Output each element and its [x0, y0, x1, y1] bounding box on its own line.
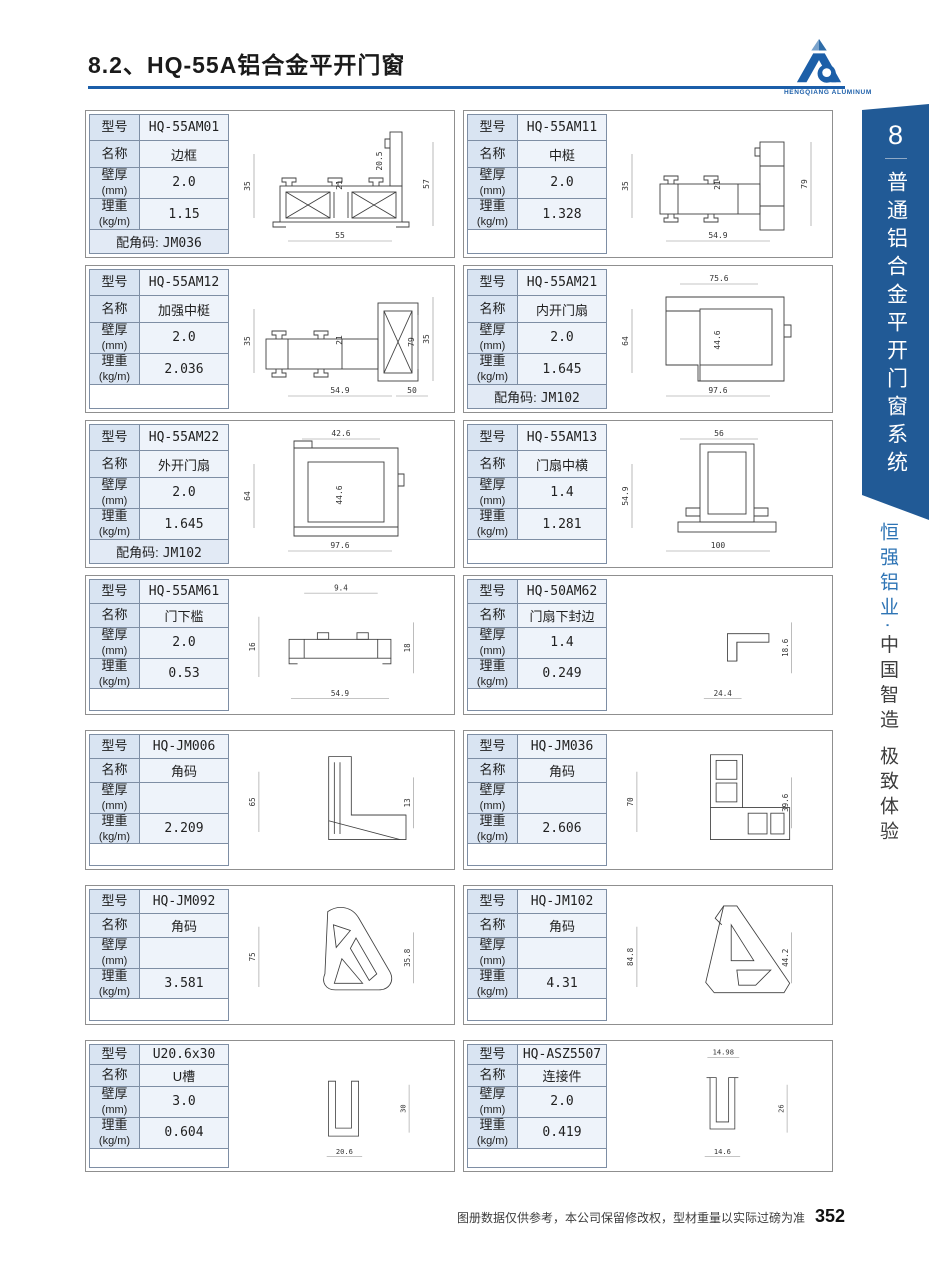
svg-text:57: 57	[422, 179, 431, 189]
name-label: 名称	[468, 1065, 518, 1087]
thickness-label: 壁厚(mm)	[90, 322, 140, 353]
weight-label: 理重(kg/m)	[90, 509, 140, 540]
spec-table: 型号 HQ-55AM21 名称 内开门扇 壁厚(mm) 2.0 理重(kg/m)…	[467, 269, 607, 409]
svg-text:75: 75	[248, 952, 257, 961]
svg-text:18.6: 18.6	[781, 638, 790, 657]
hengqiang-logo-icon	[788, 38, 850, 88]
svg-text:44.6: 44.6	[713, 330, 722, 349]
profile-drawing: 42.66444.697.6	[229, 424, 451, 564]
svg-text:21: 21	[335, 180, 344, 190]
svg-text:44.6: 44.6	[335, 485, 344, 504]
profile-drawing: 3020.6	[229, 1044, 451, 1168]
model-label: 型号	[90, 890, 140, 914]
thickness-label: 壁厚(mm)	[468, 937, 518, 968]
svg-text:35: 35	[243, 181, 252, 191]
thickness-value: 3.0	[140, 1087, 229, 1118]
spec-table: 型号 HQ-55AM12 名称 加强中梃 壁厚(mm) 2.0 理重(kg/m)…	[89, 269, 229, 409]
thickness-label: 壁厚(mm)	[90, 627, 140, 658]
weight-label: 理重(kg/m)	[468, 658, 518, 689]
weight-label: 理重(kg/m)	[468, 813, 518, 844]
thickness-value: 2.0	[518, 1087, 607, 1118]
svg-text:35: 35	[422, 334, 431, 344]
profile-drawing-svg: 42.66444.697.6	[229, 424, 451, 564]
name-value: 角码	[518, 758, 607, 782]
profile-card: 型号 HQ-55AM12 名称 加强中梃 壁厚(mm) 2.0 理重(kg/m)…	[85, 265, 455, 413]
profile-card-row: 型号 HQ-55AM12 名称 加强中梃 壁厚(mm) 2.0 理重(kg/m)…	[85, 265, 833, 413]
svg-text:35: 35	[621, 181, 630, 191]
profile-drawing: 54.95035217935	[229, 269, 451, 409]
spec-table: 型号 U20.6x30 名称 U槽 壁厚(mm) 3.0 理重(kg/m) 0.…	[89, 1044, 229, 1168]
model-label: 型号	[468, 580, 518, 604]
model-value: HQ-JM036	[518, 735, 607, 759]
thickness-label: 壁厚(mm)	[468, 322, 518, 353]
profile-card: 型号 HQ-JM006 名称 角码 壁厚(mm) 理重(kg/m) 2.209	[85, 730, 455, 870]
spec-table: 型号 HQ-55AM01 名称 边框 壁厚(mm) 2.0 理重(kg/m) 1…	[89, 114, 229, 254]
hengqiang-logo: HENGQIANG ALUMINUM	[784, 38, 854, 96]
thickness-label: 壁厚(mm)	[468, 167, 518, 198]
corner-code-row	[90, 844, 229, 866]
profile-card-row: 型号 HQ-55AM01 名称 边框 壁厚(mm) 2.0 理重(kg/m) 1…	[85, 110, 833, 258]
weight-label: 理重(kg/m)	[90, 658, 140, 689]
spec-table: 型号 HQ-55AM22 名称 外开门扇 壁厚(mm) 2.0 理重(kg/m)…	[89, 424, 229, 564]
name-value: 角码	[140, 758, 229, 782]
thickness-label: 壁厚(mm)	[90, 477, 140, 508]
svg-text:79: 79	[407, 337, 416, 347]
name-label: 名称	[90, 758, 140, 782]
name-value: 外开门扇	[140, 451, 229, 477]
model-value: HQ-JM006	[140, 735, 229, 759]
corner-code-row	[468, 540, 607, 564]
weight-value: 4.31	[518, 968, 607, 999]
profile-card-row: 型号 HQ-JM006 名称 角码 壁厚(mm) 理重(kg/m) 2.209	[85, 730, 833, 870]
profile-drawing-svg: 14.982614.6	[607, 1044, 829, 1168]
profile-drawing: 84.844.2	[607, 889, 829, 1021]
profile-drawing: 6513	[229, 734, 451, 866]
profile-drawing-svg: 54.95035217935	[229, 269, 451, 409]
name-label: 名称	[90, 603, 140, 627]
weight-value: 2.606	[518, 813, 607, 844]
profile-card: 型号 HQ-55AM22 名称 外开门扇 壁厚(mm) 2.0 理重(kg/m)…	[85, 420, 455, 568]
weight-value: 2.209	[140, 813, 229, 844]
svg-text:100: 100	[711, 541, 726, 550]
profile-drawing-svg: 75.644.66497.6	[607, 269, 829, 409]
profile-card: 型号 HQ-50AM62 名称 门扇下封边 壁厚(mm) 1.4 理重(kg/m…	[463, 575, 833, 715]
profile-card-row: 型号 HQ-JM092 名称 角码 壁厚(mm) 理重(kg/m) 3.581	[85, 885, 833, 1025]
svg-text:54.9: 54.9	[331, 689, 350, 698]
svg-text:13: 13	[403, 798, 412, 807]
name-value: 加强中梃	[140, 296, 229, 322]
profile-drawing: 55352120.557	[229, 114, 451, 254]
svg-text:24.4: 24.4	[714, 689, 733, 698]
model-label: 型号	[90, 1045, 140, 1065]
thickness-label: 壁厚(mm)	[90, 937, 140, 968]
thickness-label: 壁厚(mm)	[468, 782, 518, 813]
model-label: 型号	[468, 890, 518, 914]
weight-label: 理重(kg/m)	[468, 1117, 518, 1148]
svg-text:54.9: 54.9	[621, 486, 630, 505]
thickness-value	[140, 782, 229, 813]
weight-label: 理重(kg/m)	[468, 199, 518, 230]
brand-name-vertical: 恒强铝业	[877, 522, 898, 622]
svg-text:50: 50	[407, 386, 417, 395]
model-value: HQ-ASZ5507	[518, 1045, 607, 1065]
model-value: U20.6x30	[140, 1045, 229, 1065]
chapter-divider	[885, 158, 907, 159]
model-label: 型号	[90, 580, 140, 604]
page-number: 352	[815, 1206, 845, 1227]
weight-value: 0.249	[518, 658, 607, 689]
spec-table: 型号 HQ-55AM61 名称 门下槛 壁厚(mm) 2.0 理重(kg/m) …	[89, 579, 229, 711]
corner-code-row	[468, 844, 607, 866]
svg-text:97.6: 97.6	[708, 386, 727, 395]
name-value: 连接件	[518, 1065, 607, 1087]
model-label: 型号	[468, 270, 518, 296]
weight-value: 1.328	[518, 199, 607, 230]
thickness-value	[518, 937, 607, 968]
profile-drawing: 5654.9100	[607, 424, 829, 564]
weight-label: 理重(kg/m)	[90, 1117, 140, 1148]
spec-table: 型号 HQ-JM036 名称 角码 壁厚(mm) 理重(kg/m) 2.606	[467, 734, 607, 866]
svg-text:26: 26	[777, 1104, 786, 1113]
thickness-value	[140, 937, 229, 968]
svg-text:20.5: 20.5	[375, 151, 384, 170]
name-value: 角码	[518, 913, 607, 937]
model-value: HQ-55AM01	[140, 115, 229, 141]
weight-value: 0.53	[140, 658, 229, 689]
profile-card: 型号 HQ-JM036 名称 角码 壁厚(mm) 理重(kg/m) 2.606	[463, 730, 833, 870]
weight-label: 理重(kg/m)	[468, 354, 518, 385]
title-underline	[88, 86, 845, 89]
weight-value: 0.419	[518, 1117, 607, 1148]
model-label: 型号	[468, 115, 518, 141]
corner-code-row: 配角码:JM102	[468, 385, 607, 409]
chapter-ribbon: 8 普通铝合金平开门窗系统	[862, 104, 929, 520]
svg-text:56: 56	[714, 429, 724, 438]
profile-drawing-svg: 84.844.2	[607, 889, 829, 1021]
svg-text:14.6: 14.6	[714, 1147, 731, 1156]
thickness-value: 1.4	[518, 627, 607, 658]
thickness-label: 壁厚(mm)	[90, 782, 140, 813]
profile-card: 型号 HQ-ASZ5507 名称 连接件 壁厚(mm) 2.0 理重(kg/m)…	[463, 1040, 833, 1172]
profile-card: 型号 HQ-55AM21 名称 内开门扇 壁厚(mm) 2.0 理重(kg/m)…	[463, 265, 833, 413]
profile-grid: 型号 HQ-55AM01 名称 边框 壁厚(mm) 2.0 理重(kg/m) 1…	[85, 110, 833, 1172]
weight-label: 理重(kg/m)	[468, 509, 518, 540]
name-value: 门扇中横	[518, 451, 607, 477]
svg-text:35: 35	[243, 336, 252, 346]
name-value: 角码	[140, 913, 229, 937]
thickness-value: 2.0	[518, 322, 607, 353]
profile-card: 型号 HQ-55AM61 名称 门下槛 壁厚(mm) 2.0 理重(kg/m) …	[85, 575, 455, 715]
name-label: 名称	[468, 603, 518, 627]
model-label: 型号	[468, 1045, 518, 1065]
logo-text: HENGQIANG ALUMINUM	[784, 89, 854, 96]
model-label: 型号	[468, 425, 518, 451]
thickness-value: 2.0	[518, 167, 607, 198]
svg-text:9.4: 9.4	[334, 583, 348, 592]
thickness-label: 壁厚(mm)	[468, 627, 518, 658]
name-value: 门扇下封边	[518, 603, 607, 627]
model-label: 型号	[90, 115, 140, 141]
model-value: HQ-55AM11	[518, 115, 607, 141]
svg-text:35.8: 35.8	[403, 948, 412, 967]
profile-drawing: 54.9352179	[607, 114, 829, 254]
svg-text:44.2: 44.2	[781, 949, 790, 967]
name-label: 名称	[468, 451, 518, 477]
footer-disclaimer: 图册数据仅供参考，本公司保留修改权，型材重量以实际过磅为准	[457, 1209, 805, 1226]
name-label: 名称	[468, 296, 518, 322]
corner-code-row: 配角码:JM102	[90, 540, 229, 564]
corner-code-row	[90, 999, 229, 1021]
spec-table: 型号 HQ-ASZ5507 名称 连接件 壁厚(mm) 2.0 理重(kg/m)…	[467, 1044, 607, 1168]
profile-card: 型号 HQ-55AM01 名称 边框 壁厚(mm) 2.0 理重(kg/m) 1…	[85, 110, 455, 258]
svg-text:54.9: 54.9	[708, 231, 727, 240]
name-label: 名称	[468, 141, 518, 167]
brand-separator: ·	[877, 622, 898, 634]
svg-text:18: 18	[403, 643, 412, 653]
model-value: HQ-JM102	[518, 890, 607, 914]
svg-text:16: 16	[248, 642, 257, 652]
profile-card: 型号 HQ-55AM11 名称 中梃 壁厚(mm) 2.0 理重(kg/m) 1…	[463, 110, 833, 258]
corner-code-row: 配角码:JM036	[90, 230, 229, 254]
svg-text:70: 70	[626, 797, 635, 807]
svg-text:64: 64	[621, 336, 630, 346]
profile-card: 型号 HQ-JM102 名称 角码 壁厚(mm) 理重(kg/m) 4.31	[463, 885, 833, 1025]
corner-code-row	[468, 230, 607, 254]
thickness-value	[518, 782, 607, 813]
model-value: HQ-55AM21	[518, 270, 607, 296]
profile-drawing-svg: 24.418.6	[607, 579, 829, 711]
weight-value: 3.581	[140, 968, 229, 999]
thickness-value: 2.0	[140, 322, 229, 353]
name-label: 名称	[468, 913, 518, 937]
name-value: 边框	[140, 141, 229, 167]
weight-value: 1.645	[140, 509, 229, 540]
name-label: 名称	[90, 913, 140, 937]
weight-value: 2.036	[140, 354, 229, 385]
model-value: HQ-JM092	[140, 890, 229, 914]
profile-drawing-svg: 54.9352179	[607, 114, 829, 254]
name-value: 内开门扇	[518, 296, 607, 322]
svg-text:39.6: 39.6	[781, 793, 790, 812]
profile-drawing-svg: 7535.8	[229, 889, 451, 1021]
profile-drawing: 24.418.6	[607, 579, 829, 711]
chapter-title-vertical: 普通铝合金平开门窗系统	[881, 171, 911, 479]
svg-text:84.8: 84.8	[626, 947, 635, 966]
corner-code-row	[90, 1148, 229, 1167]
svg-text:65: 65	[248, 797, 257, 806]
corner-code-row	[90, 689, 229, 711]
chapter-number: 8	[862, 122, 929, 149]
weight-label: 理重(kg/m)	[468, 968, 518, 999]
weight-value: 0.604	[140, 1117, 229, 1148]
thickness-label: 壁厚(mm)	[468, 477, 518, 508]
spec-table: 型号 HQ-JM006 名称 角码 壁厚(mm) 理重(kg/m) 2.209	[89, 734, 229, 866]
name-value: 中梃	[518, 141, 607, 167]
svg-text:14.98: 14.98	[713, 1048, 734, 1057]
thickness-value: 2.0	[140, 477, 229, 508]
profile-card-row: 型号 U20.6x30 名称 U槽 壁厚(mm) 3.0 理重(kg/m) 0.…	[85, 1040, 833, 1172]
profile-drawing-svg: 6513	[229, 734, 451, 866]
svg-text:64: 64	[243, 491, 252, 501]
side-slogan: 恒强铝业·中国智造 极致体验	[878, 522, 897, 846]
thickness-value: 2.0	[140, 627, 229, 658]
spec-table: 型号 HQ-JM102 名称 角码 壁厚(mm) 理重(kg/m) 4.31	[467, 889, 607, 1021]
svg-text:75.6: 75.6	[709, 274, 728, 283]
spec-table: 型号 HQ-JM092 名称 角码 壁厚(mm) 理重(kg/m) 3.581	[89, 889, 229, 1021]
profile-drawing-svg: 7039.6	[607, 734, 829, 866]
corner-code-row	[90, 385, 229, 409]
svg-text:42.6: 42.6	[331, 429, 350, 438]
weight-value: 1.281	[518, 509, 607, 540]
model-label: 型号	[90, 270, 140, 296]
profile-drawing-svg: 55352120.557	[229, 114, 451, 254]
svg-text:79: 79	[800, 179, 809, 189]
svg-text:54.9: 54.9	[330, 386, 349, 395]
thickness-label: 壁厚(mm)	[90, 1087, 140, 1118]
model-value: HQ-55AM61	[140, 580, 229, 604]
page-footer: 图册数据仅供参考，本公司保留修改权，型材重量以实际过磅为准 352	[0, 1206, 845, 1227]
svg-text:97.6: 97.6	[330, 541, 349, 550]
name-label: 名称	[468, 758, 518, 782]
profile-drawing: 9.4161854.9	[229, 579, 451, 711]
brand-tagline-vertical: 中国智造 极致体验	[877, 634, 898, 845]
profile-card-row: 型号 HQ-55AM22 名称 外开门扇 壁厚(mm) 2.0 理重(kg/m)…	[85, 420, 833, 568]
spec-table: 型号 HQ-55AM13 名称 门扇中横 壁厚(mm) 1.4 理重(kg/m)…	[467, 424, 607, 564]
weight-value: 1.15	[140, 199, 229, 230]
corner-code-row	[468, 1148, 607, 1167]
spec-table: 型号 HQ-55AM11 名称 中梃 壁厚(mm) 2.0 理重(kg/m) 1…	[467, 114, 607, 254]
profile-drawing-svg: 9.4161854.9	[229, 579, 451, 711]
weight-label: 理重(kg/m)	[90, 354, 140, 385]
thickness-value: 2.0	[140, 167, 229, 198]
profile-card-row: 型号 HQ-55AM61 名称 门下槛 壁厚(mm) 2.0 理重(kg/m) …	[85, 575, 833, 715]
name-value: 门下槛	[140, 603, 229, 627]
model-value: HQ-50AM62	[518, 580, 607, 604]
weight-label: 理重(kg/m)	[90, 968, 140, 999]
page-title: 8.2、HQ-55A铝合金平开门窗	[88, 46, 405, 80]
profile-drawing: 7535.8	[229, 889, 451, 1021]
name-value: U槽	[140, 1065, 229, 1087]
svg-text:21: 21	[335, 335, 344, 345]
corner-code-row	[468, 689, 607, 711]
svg-text:30: 30	[399, 1104, 408, 1113]
model-value: HQ-55AM22	[140, 425, 229, 451]
svg-text:20.6: 20.6	[336, 1147, 353, 1156]
thickness-label: 壁厚(mm)	[90, 167, 140, 198]
svg-text:55: 55	[335, 231, 345, 240]
model-value: HQ-55AM13	[518, 425, 607, 451]
thickness-value: 1.4	[518, 477, 607, 508]
name-label: 名称	[90, 1065, 140, 1087]
profile-drawing-svg: 5654.9100	[607, 424, 829, 564]
model-label: 型号	[468, 735, 518, 759]
profile-card: 型号 U20.6x30 名称 U槽 壁厚(mm) 3.0 理重(kg/m) 0.…	[85, 1040, 455, 1172]
weight-label: 理重(kg/m)	[90, 199, 140, 230]
weight-value: 1.645	[518, 354, 607, 385]
name-label: 名称	[90, 141, 140, 167]
corner-code-row	[468, 999, 607, 1021]
model-label: 型号	[90, 735, 140, 759]
profile-drawing-svg: 3020.6	[229, 1044, 451, 1168]
profile-drawing: 75.644.66497.6	[607, 269, 829, 409]
model-value: HQ-55AM12	[140, 270, 229, 296]
profile-drawing: 7039.6	[607, 734, 829, 866]
thickness-label: 壁厚(mm)	[468, 1087, 518, 1118]
model-label: 型号	[90, 425, 140, 451]
catalog-page: 8.2、HQ-55A铝合金平开门窗 HENGQIANG ALUMINUM 8 普…	[0, 0, 930, 1262]
profile-card: 型号 HQ-55AM13 名称 门扇中横 壁厚(mm) 1.4 理重(kg/m)…	[463, 420, 833, 568]
spec-table: 型号 HQ-50AM62 名称 门扇下封边 壁厚(mm) 1.4 理重(kg/m…	[467, 579, 607, 711]
profile-drawing: 14.982614.6	[607, 1044, 829, 1168]
name-label: 名称	[90, 296, 140, 322]
weight-label: 理重(kg/m)	[90, 813, 140, 844]
profile-card: 型号 HQ-JM092 名称 角码 壁厚(mm) 理重(kg/m) 3.581	[85, 885, 455, 1025]
svg-text:21: 21	[713, 180, 722, 190]
name-label: 名称	[90, 451, 140, 477]
